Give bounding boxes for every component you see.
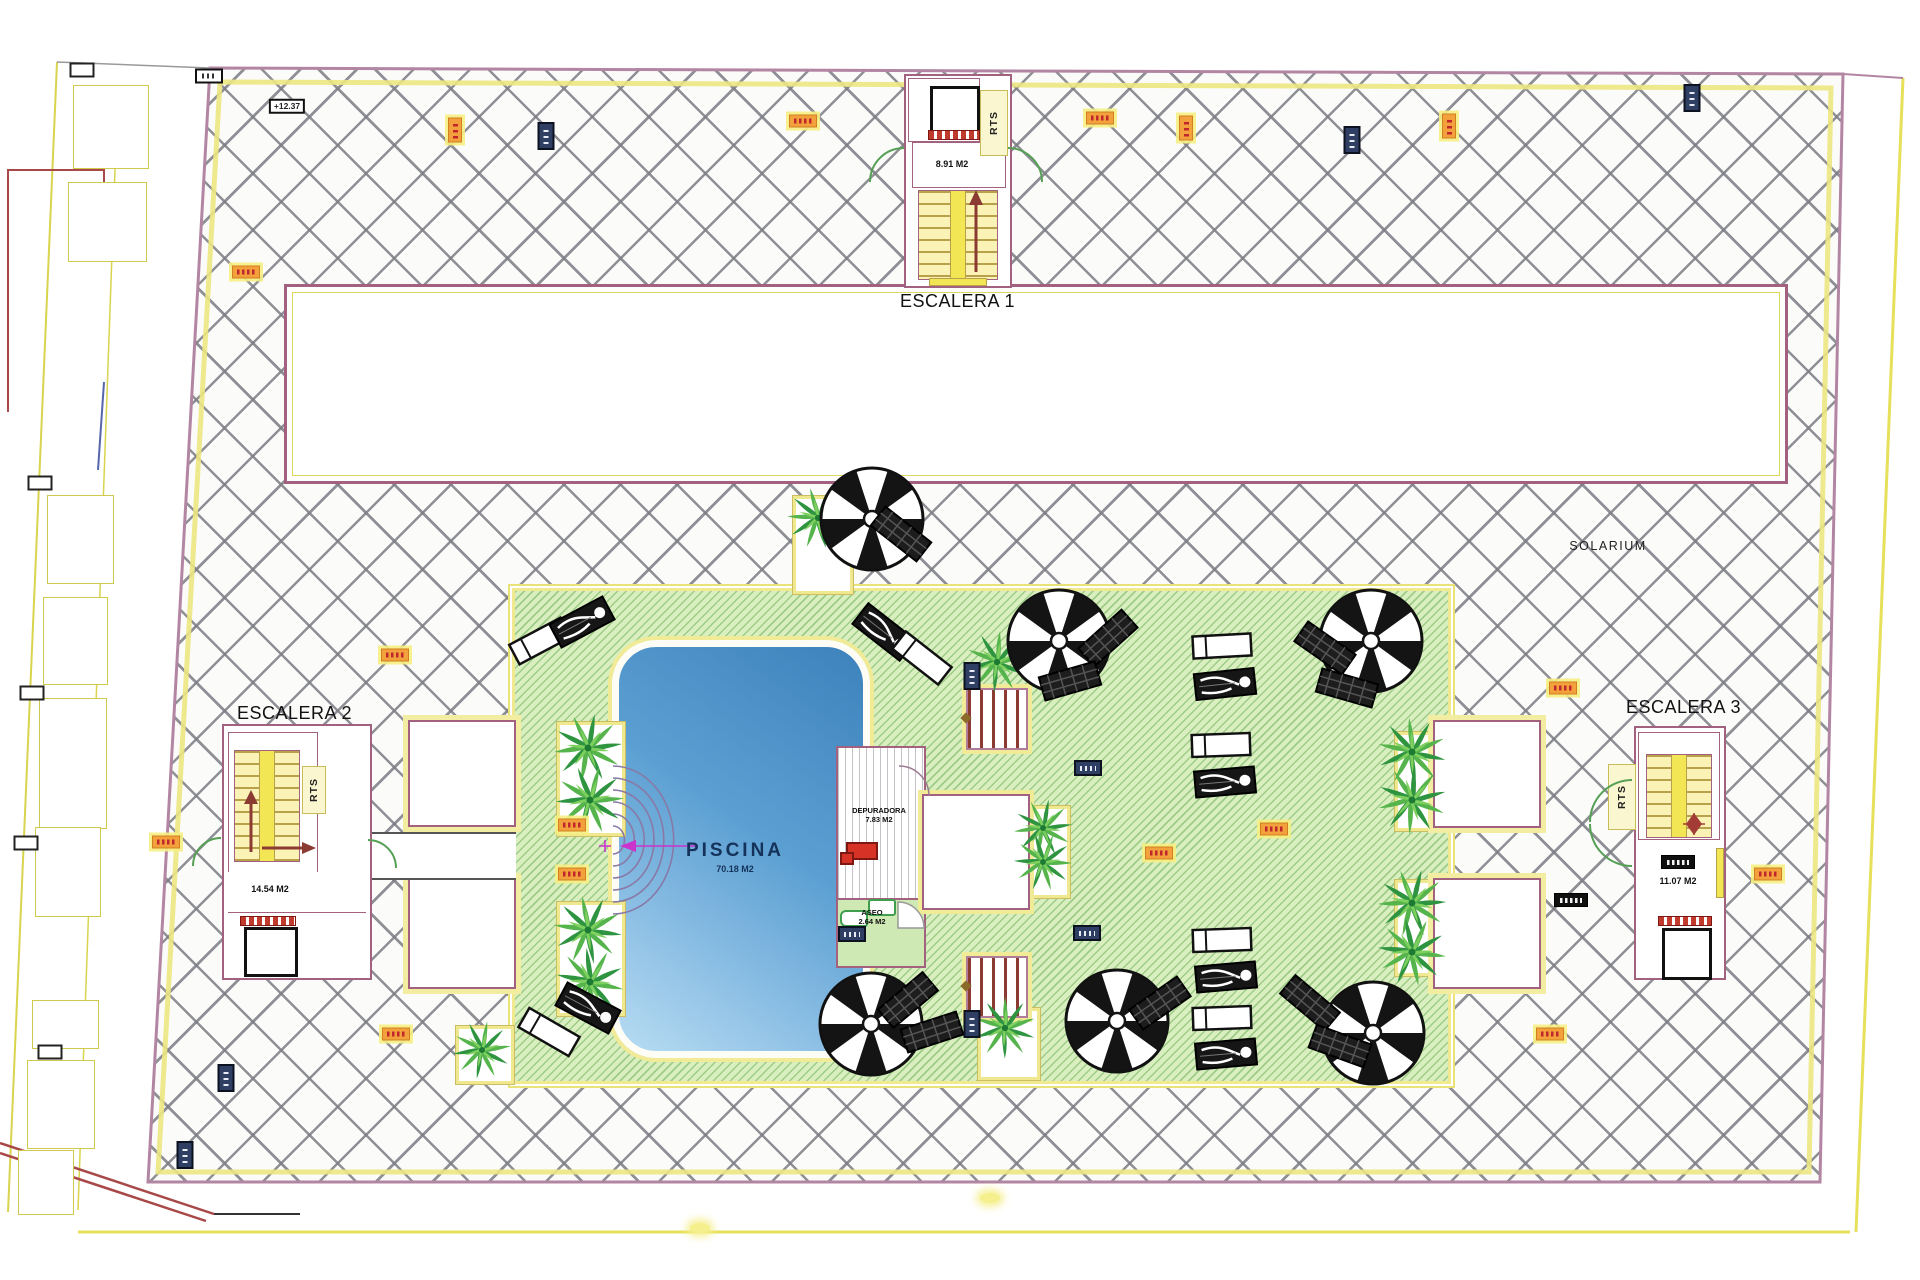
marker-glyph bbox=[1554, 686, 1572, 691]
solarium-label: SOLARIUM bbox=[1552, 539, 1664, 553]
marker-orange-v bbox=[448, 118, 462, 143]
marker-white-blank bbox=[195, 69, 223, 84]
piscina-label: PISCINA bbox=[680, 840, 790, 862]
shaft-stub bbox=[1716, 848, 1724, 898]
marker-glyph bbox=[453, 122, 458, 138]
planter bbox=[456, 1026, 514, 1084]
rts-label: RTS bbox=[988, 111, 1000, 135]
marker-navy-v bbox=[218, 1064, 235, 1092]
planter bbox=[978, 1008, 1040, 1080]
rooftop-plan-canvas: RTS RTS RTS bbox=[0, 0, 1920, 1280]
marker-yellow-blob bbox=[980, 1193, 1000, 1203]
marker-orange-h bbox=[1754, 868, 1782, 881]
escalera2-core bbox=[222, 724, 372, 980]
marker-yellow-blob bbox=[690, 1223, 710, 1233]
marker-glyph bbox=[544, 128, 549, 144]
access-corridor bbox=[368, 832, 516, 880]
terrace-rect bbox=[47, 495, 114, 584]
terrace-rect bbox=[68, 182, 147, 262]
elevator-icon bbox=[930, 86, 980, 136]
aseo-name: ASEO bbox=[846, 908, 898, 917]
pergola-shower-bottom bbox=[966, 956, 1028, 1018]
marker-orange-v bbox=[1442, 114, 1456, 139]
skylight-square bbox=[408, 720, 516, 827]
marker-glyph bbox=[1560, 898, 1582, 903]
elevator-icon bbox=[1662, 928, 1712, 980]
marker-glyph bbox=[183, 1147, 188, 1163]
terrace-rect bbox=[27, 1060, 95, 1149]
marker-orange-h bbox=[1549, 682, 1577, 695]
skylight-square bbox=[1433, 720, 1541, 828]
marker-glyph bbox=[970, 668, 975, 684]
marker-navy-v bbox=[177, 1141, 194, 1169]
elevator-door-icon bbox=[1658, 916, 1712, 926]
marker-glyph bbox=[970, 1016, 975, 1032]
marker-orange-v bbox=[1179, 116, 1193, 141]
elevator-icon bbox=[244, 927, 298, 977]
marker-navy-h bbox=[1073, 925, 1101, 941]
marker-glyph bbox=[157, 840, 175, 845]
marker-glyph bbox=[1091, 116, 1109, 121]
skylight-square bbox=[408, 878, 516, 989]
escalera2-area-label: 14.54 M2 bbox=[238, 884, 302, 894]
planter bbox=[1026, 806, 1070, 898]
depuradora-label: DEPURADORA 7.83 M2 bbox=[838, 806, 920, 825]
rts-label: RTS bbox=[1616, 785, 1628, 809]
pillar-icon bbox=[28, 476, 53, 491]
pillar-icon bbox=[20, 686, 45, 701]
marker-orange-h bbox=[1086, 112, 1114, 125]
marker-navy-v bbox=[538, 122, 555, 150]
marker-glyph bbox=[1447, 118, 1452, 134]
terrace-rect bbox=[73, 85, 149, 169]
piscina-area-label: 70.18 M2 bbox=[680, 864, 790, 874]
stair-stub bbox=[929, 278, 987, 286]
pool-pump-icon bbox=[846, 842, 878, 860]
marker-navy-v bbox=[1344, 126, 1361, 154]
marker-glyph bbox=[1690, 90, 1695, 106]
pergola-shower-top bbox=[966, 688, 1028, 750]
marker-orange-h bbox=[558, 819, 586, 832]
marker-glyph bbox=[794, 119, 812, 124]
terrace-rect bbox=[39, 698, 107, 829]
store-room bbox=[922, 794, 1030, 910]
marker-glyph bbox=[202, 74, 216, 79]
marker-glyph bbox=[1265, 827, 1283, 832]
marker-glyph bbox=[1541, 1032, 1559, 1037]
marker-glyph bbox=[1350, 132, 1355, 148]
stair-rail bbox=[950, 191, 966, 279]
stair-flight bbox=[918, 190, 998, 280]
marker-glyph bbox=[237, 270, 255, 275]
rts-shaft-3: RTS bbox=[1608, 764, 1636, 830]
rts-label: RTS bbox=[308, 778, 320, 802]
terrace-rect bbox=[35, 827, 101, 917]
skylight-square bbox=[1433, 878, 1541, 989]
escalera1-label: ESCALERA 1 bbox=[900, 291, 1012, 312]
marker-navy-v bbox=[1684, 84, 1701, 112]
marker-glyph bbox=[563, 823, 581, 828]
marker-orange-h bbox=[382, 1028, 410, 1041]
building-void-below bbox=[284, 284, 1788, 484]
planter bbox=[793, 496, 853, 594]
marker-orange-h bbox=[1536, 1028, 1564, 1041]
escalera3-label: ESCALERA 3 bbox=[1626, 697, 1738, 718]
rts-shaft-1: RTS bbox=[980, 90, 1008, 156]
pillar-icon bbox=[70, 63, 95, 78]
marker-glyph bbox=[1080, 766, 1096, 771]
terrace-rect bbox=[32, 1000, 99, 1049]
marker-glyph bbox=[563, 872, 581, 877]
terrace-rect bbox=[18, 1150, 74, 1215]
escalera2-label: ESCALERA 2 bbox=[237, 703, 349, 724]
aseo-label: ASEO 2.64 M2 bbox=[846, 908, 898, 927]
marker-glyph bbox=[1759, 872, 1777, 877]
planter bbox=[557, 902, 625, 1016]
marker-white-label: +12.37 bbox=[269, 99, 305, 114]
marker-black-label bbox=[1554, 893, 1588, 907]
elevator-door-icon bbox=[240, 916, 296, 926]
marker-orange-h bbox=[789, 115, 817, 128]
marker-glyph bbox=[1079, 931, 1095, 936]
marker-navy-v bbox=[964, 662, 981, 690]
terrace-rect bbox=[43, 597, 108, 685]
marker-orange-h bbox=[152, 836, 180, 849]
elevator-door-icon bbox=[928, 130, 980, 140]
marker-orange-h bbox=[1260, 823, 1288, 836]
marker-glyph bbox=[386, 653, 404, 658]
marker-navy-h bbox=[1074, 760, 1102, 776]
rts-shaft-2: RTS bbox=[302, 766, 326, 814]
marker-orange-h bbox=[558, 868, 586, 881]
marker-black-label bbox=[1661, 855, 1695, 869]
pillar-icon bbox=[38, 1045, 63, 1060]
marker-navy-v bbox=[964, 1010, 981, 1038]
marker-navy-h bbox=[838, 926, 866, 942]
marker-glyph bbox=[1150, 851, 1168, 856]
escalera3-core bbox=[1634, 726, 1726, 980]
marker-orange-h bbox=[232, 266, 260, 279]
stair-flight bbox=[1646, 754, 1712, 838]
marker-glyph bbox=[224, 1070, 229, 1086]
escalera3-area-label: 11.07 M2 bbox=[1646, 876, 1710, 886]
marker-orange-h bbox=[1145, 847, 1173, 860]
pillar-icon bbox=[14, 836, 39, 851]
marker-glyph bbox=[1184, 120, 1189, 136]
marker-glyph bbox=[844, 932, 860, 937]
stair-flight bbox=[234, 750, 300, 862]
depuradora-name: DEPURADORA bbox=[838, 806, 920, 815]
marker-orange-h bbox=[381, 649, 409, 662]
marker-glyph bbox=[387, 1032, 405, 1037]
stair-rail bbox=[259, 751, 275, 861]
marker-glyph bbox=[1667, 860, 1689, 865]
escalera1-area-label: 8.91 M2 bbox=[920, 159, 984, 169]
depuradora-area: 7.83 M2 bbox=[838, 815, 920, 824]
stair-rail bbox=[1671, 755, 1687, 837]
